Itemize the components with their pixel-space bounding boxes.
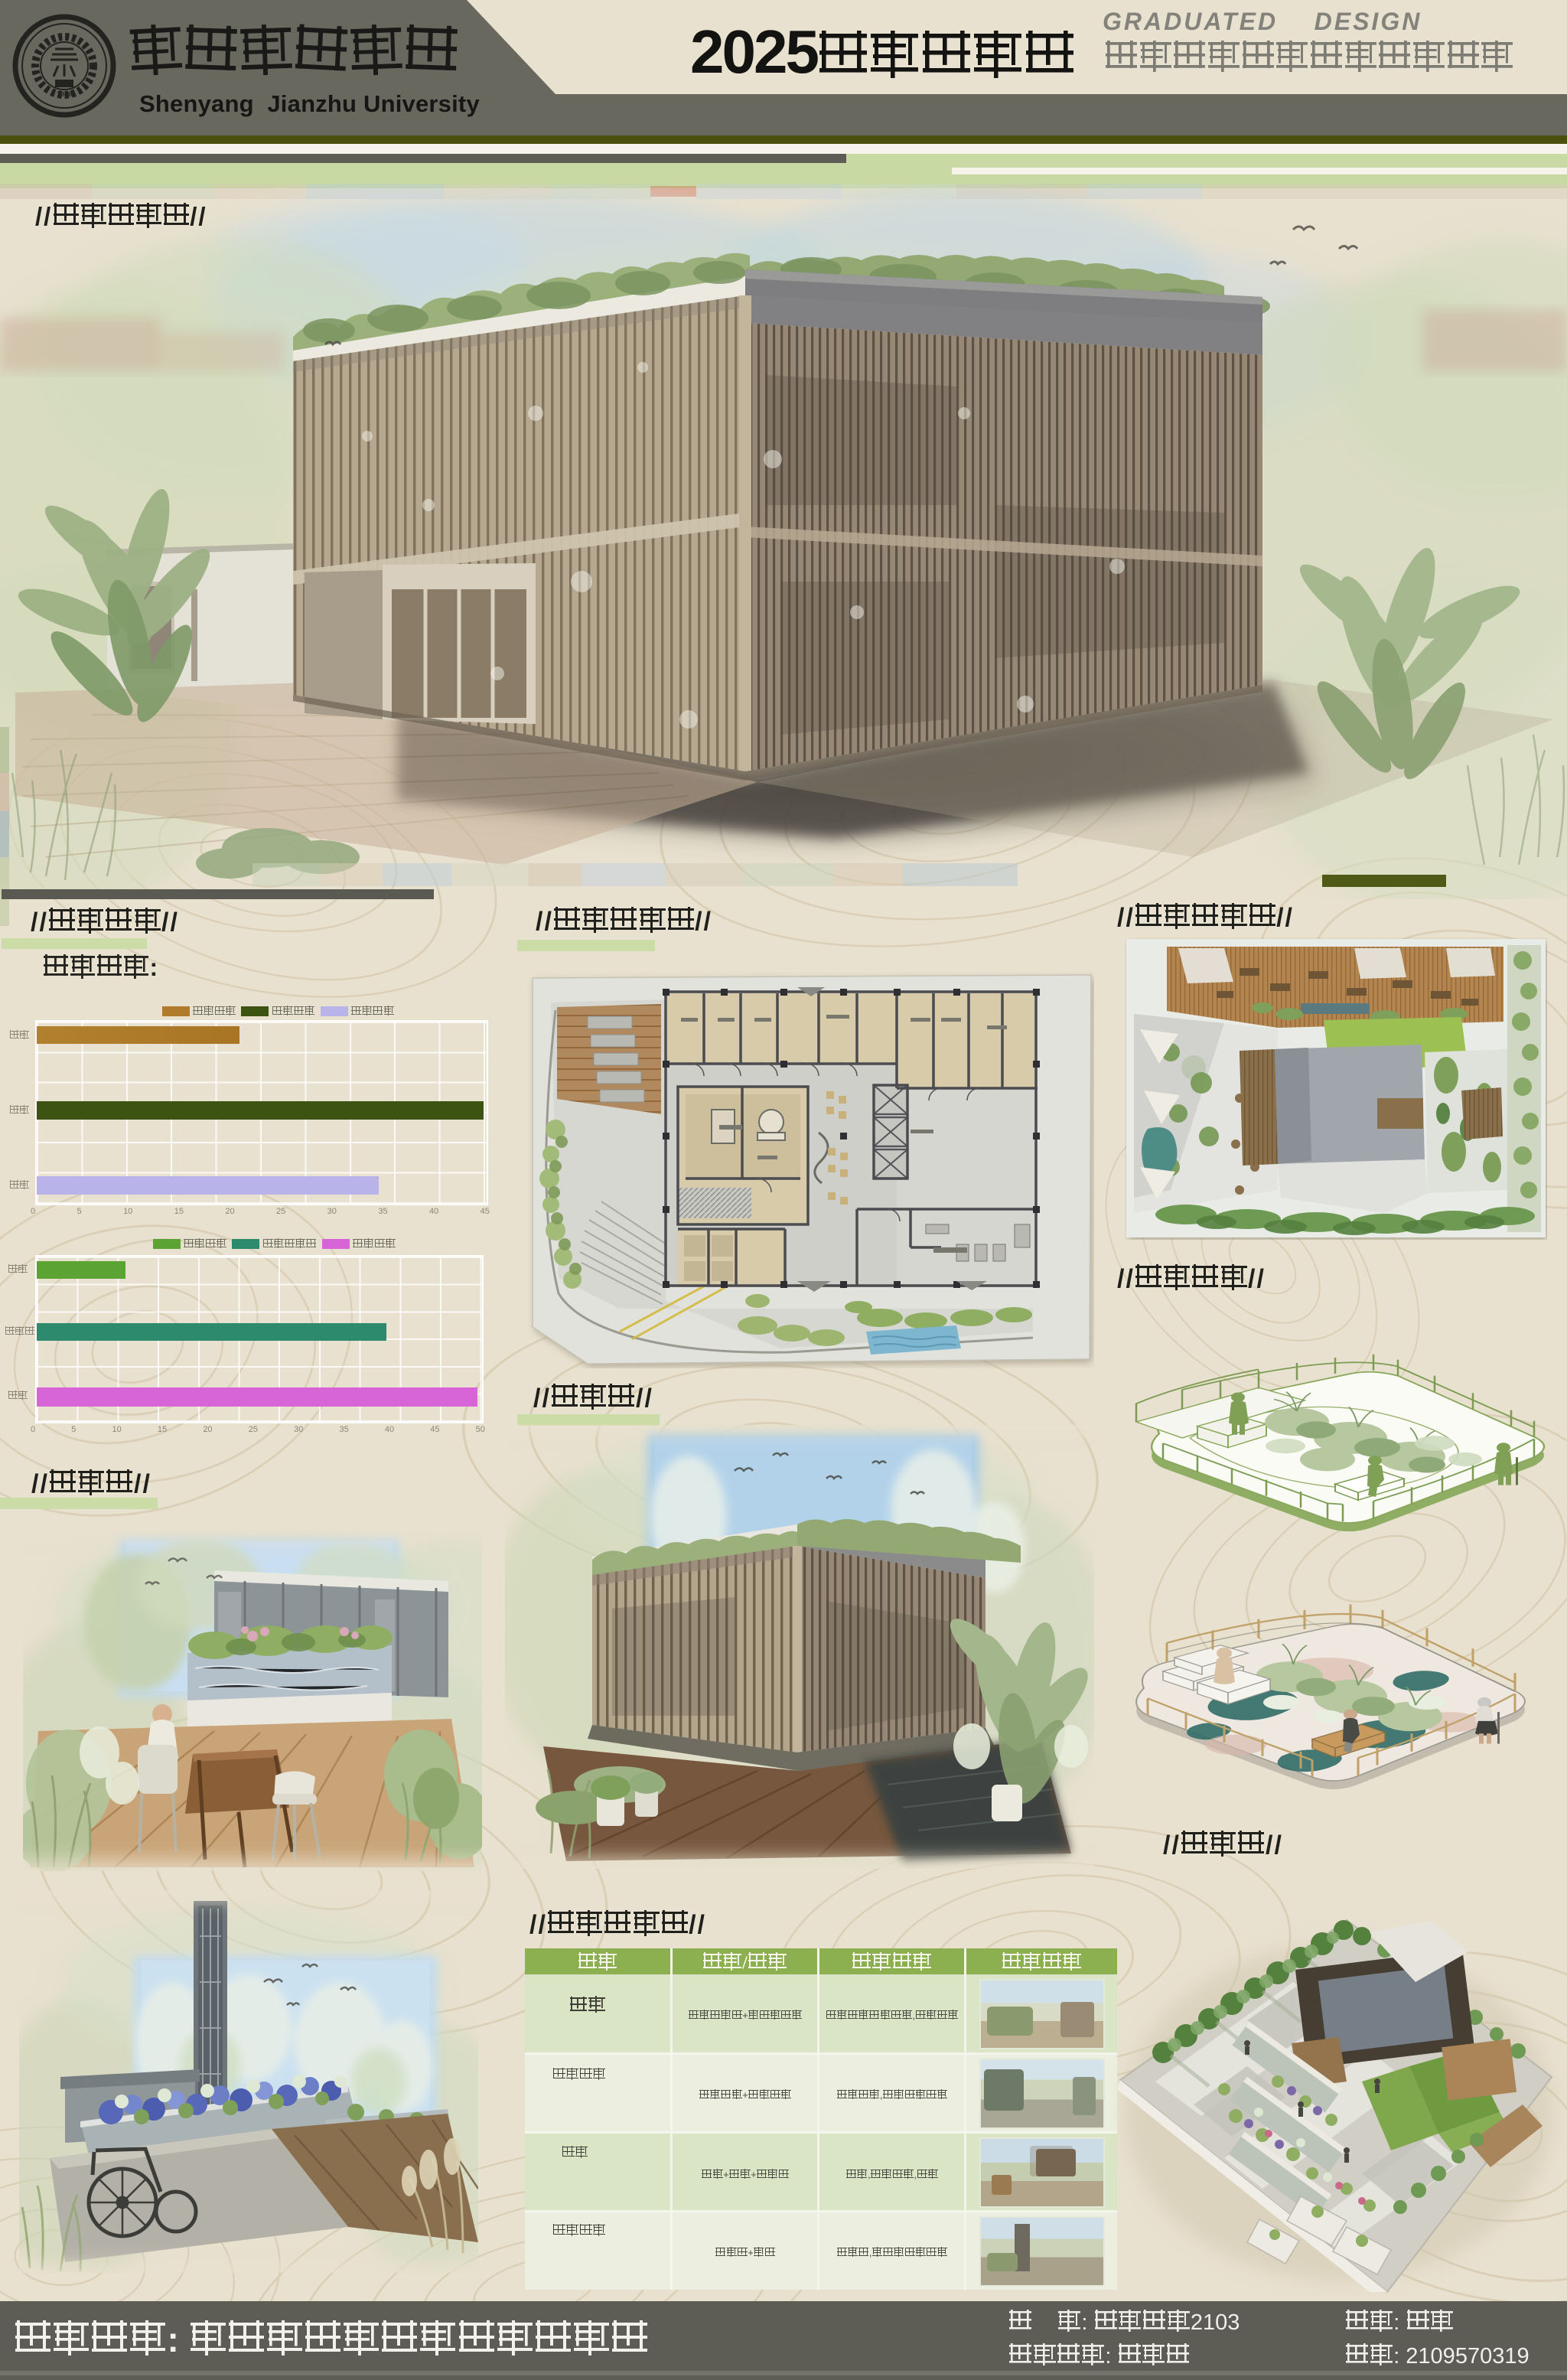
svg-text:1948: 1948 — [57, 90, 72, 98]
